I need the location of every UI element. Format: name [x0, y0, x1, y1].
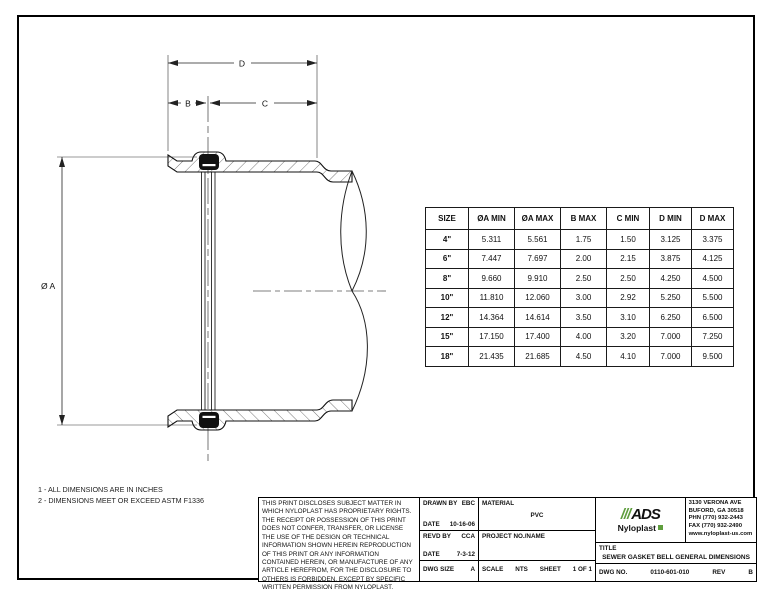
- dwg-size-label: DWG SIZE: [423, 566, 454, 573]
- size-cell: 6": [426, 249, 469, 269]
- company-column: ///ADS Nyloplast 3130 VERONA AVE BUFORD,…: [596, 498, 756, 581]
- dimensions-table: SIZEØA MINØA MAXB MAXC MIND MIND MAX4"5.…: [425, 207, 734, 367]
- project-label: PROJECT NO./NAME: [482, 533, 545, 540]
- company-address: 3130 VERONA AVE BUFORD, GA 30518 PHN (77…: [686, 498, 756, 542]
- value-cell: 3.00: [561, 288, 607, 308]
- address-line: 3130 VERONA AVE: [689, 500, 753, 508]
- ads-nyloplast-logo: ///ADS Nyloplast: [596, 498, 686, 542]
- sheet-label: SHEET: [540, 566, 561, 573]
- value-cell: 2.15: [607, 249, 650, 269]
- proprietary-disclaimer: THIS PRINT DISCLOSES SUBJECT MATTER IN W…: [259, 498, 420, 581]
- nyloplast-wordmark: Nyloplast: [618, 523, 663, 533]
- address-line: BUFORD, GA 30518: [689, 508, 753, 516]
- size-cell: 10": [426, 288, 469, 308]
- table-header-cell: ØA MAX: [515, 208, 561, 230]
- drawing-sheet: D B C Ø A SIZEØA MINØA MAXB MAXC MIND MI…: [0, 0, 776, 600]
- date-label: DATE: [423, 551, 440, 558]
- dwg-size-cell: DWG SIZE A: [420, 561, 478, 578]
- nyloplast-text: Nyloplast: [618, 523, 656, 533]
- address-line: FAX (770) 932-2490: [689, 523, 753, 531]
- company-cell: ///ADS Nyloplast 3130 VERONA AVE BUFORD,…: [596, 498, 756, 543]
- general-notes: 1 - ALL DIMENSIONS ARE IN INCHES 2 - DIM…: [38, 484, 204, 506]
- drawn-by-cell: DRAWN BY EBC DATE 10-16-06: [420, 498, 478, 531]
- value-cell: 6.500: [692, 308, 734, 328]
- value-cell: 5.311: [469, 230, 515, 250]
- value-cell: 3.375: [692, 230, 734, 250]
- value-cell: 7.447: [469, 249, 515, 269]
- dwg-no-value: 0110-601-010: [650, 569, 689, 576]
- material-cell: MATERIAL PVC: [479, 498, 595, 531]
- value-cell: 4.10: [607, 347, 650, 367]
- size-cell: 18": [426, 347, 469, 367]
- value-cell: 4.50: [561, 347, 607, 367]
- dim-label-diameter-a: Ø A: [41, 281, 56, 291]
- dwg-no-cell: DWG NO. 0110-601-010 REV B: [596, 564, 756, 581]
- scale-value: NTS: [515, 566, 528, 573]
- technical-drawing: D B C Ø A: [0, 0, 420, 490]
- size-cell: 8": [426, 269, 469, 289]
- table-row: 18"21.43521.6854.504.107.0009.500: [426, 347, 734, 367]
- project-cell: PROJECT NO./NAME: [479, 531, 595, 561]
- value-cell: 4.250: [650, 269, 692, 289]
- value-cell: 11.810: [469, 288, 515, 308]
- table-header-cell: ØA MIN: [469, 208, 515, 230]
- dimension-diameter-a: Ø A: [41, 157, 197, 425]
- value-cell: 5.561: [515, 230, 561, 250]
- value-cell: 1.50: [607, 230, 650, 250]
- value-cell: 14.364: [469, 308, 515, 328]
- drawn-by-value: EBC: [462, 500, 475, 507]
- title-label: TITLE: [599, 545, 617, 552]
- value-cell: 7.000: [650, 327, 692, 347]
- revd-by-value: CCA: [461, 533, 475, 540]
- drawing-title: SEWER GASKET BELL GENERAL DIMENSIONS: [596, 554, 756, 561]
- value-cell: 2.92: [607, 288, 650, 308]
- dwg-no-label: DWG NO.: [599, 569, 627, 576]
- size-cell: 12": [426, 308, 469, 328]
- value-cell: 5.250: [650, 288, 692, 308]
- dwg-size-value: A: [470, 566, 475, 573]
- value-cell: 17.150: [469, 327, 515, 347]
- gasket-section: [199, 154, 219, 170]
- date-value: 10-16-06: [450, 521, 475, 528]
- bell-wall-bottom: [168, 400, 352, 430]
- value-cell: 3.875: [650, 249, 692, 269]
- value-cell: 6.250: [650, 308, 692, 328]
- value-cell: 12.060: [515, 288, 561, 308]
- value-cell: 7.697: [515, 249, 561, 269]
- value-cell: 9.910: [515, 269, 561, 289]
- scale-label: SCALE: [482, 566, 503, 573]
- sheet-value: 1 OF 1: [573, 566, 592, 573]
- revd-by-label: REVD BY: [423, 533, 451, 540]
- value-cell: 2.00: [561, 249, 607, 269]
- value-cell: 7.250: [692, 327, 734, 347]
- table-row: 4"5.3115.5611.751.503.1253.375: [426, 230, 734, 250]
- scale-sheet-cell: SCALE NTS SHEET 1 OF 1: [479, 561, 595, 578]
- table-row: 15"17.15017.4004.003.207.0007.250: [426, 327, 734, 347]
- value-cell: 7.000: [650, 347, 692, 367]
- table-row: 10"11.81012.0603.002.925.2505.500: [426, 288, 734, 308]
- value-cell: 2.50: [607, 269, 650, 289]
- table-header-cell: D MAX: [692, 208, 734, 230]
- table-header-cell: C MIN: [607, 208, 650, 230]
- address-line: www.nyloplast-us.com: [689, 531, 753, 539]
- size-cell: 4": [426, 230, 469, 250]
- title-cell: TITLE SEWER GASKET BELL GENERAL DIMENSIO…: [596, 543, 756, 565]
- value-cell: 4.00: [561, 327, 607, 347]
- table-row: 12"14.36414.6143.503.106.2506.500: [426, 308, 734, 328]
- drawn-by-label: DRAWN BY: [423, 500, 457, 507]
- address-line: PHN (770) 932-2443: [689, 515, 753, 523]
- dimension-b-c: B C: [168, 99, 317, 109]
- material-value: PVC: [479, 512, 595, 519]
- logo-text: ADS: [631, 506, 660, 523]
- material-label: MATERIAL: [482, 500, 514, 507]
- date-value: 7-3-12: [457, 551, 475, 558]
- dim-label-b: B: [185, 99, 191, 109]
- logo-slashes-icon: ///: [621, 506, 631, 523]
- value-cell: 1.75: [561, 230, 607, 250]
- bell-wall-section: [168, 152, 352, 182]
- table-header-cell: D MIN: [650, 208, 692, 230]
- size-cell: 15": [426, 327, 469, 347]
- ads-logo: ///ADS: [621, 507, 660, 522]
- value-cell: 14.614: [515, 308, 561, 328]
- revd-by-cell: REVD BY CCA DATE 7-3-12: [420, 531, 478, 561]
- value-cell: 3.20: [607, 327, 650, 347]
- table-row: 6"7.4477.6972.002.153.8754.125: [426, 249, 734, 269]
- value-cell: 3.125: [650, 230, 692, 250]
- value-cell: 5.500: [692, 288, 734, 308]
- value-cell: 21.685: [515, 347, 561, 367]
- value-cell: 2.50: [561, 269, 607, 289]
- value-cell: 4.500: [692, 269, 734, 289]
- note-line: 2 - DIMENSIONS MEET OR EXCEED ASTM F1336: [38, 495, 204, 506]
- value-cell: 17.400: [515, 327, 561, 347]
- rev-label: REV: [712, 569, 725, 576]
- value-cell: 9.500: [692, 347, 734, 367]
- table-row: 8"9.6609.9102.502.504.2504.500: [426, 269, 734, 289]
- table-header-cell: SIZE: [426, 208, 469, 230]
- dim-label-c: C: [262, 99, 268, 109]
- bell-wall-top: [168, 152, 352, 182]
- gasket-slot: [203, 164, 216, 166]
- table-header-cell: B MAX: [561, 208, 607, 230]
- value-cell: 3.50: [561, 308, 607, 328]
- dim-label-d: D: [239, 59, 245, 69]
- logo-square-icon: [658, 525, 663, 530]
- value-cell: 21.435: [469, 347, 515, 367]
- note-line: 1 - ALL DIMENSIONS ARE IN INCHES: [38, 484, 204, 495]
- material-column: MATERIAL PVC PROJECT NO./NAME SCALE NTS …: [479, 498, 596, 581]
- value-cell: 4.125: [692, 249, 734, 269]
- title-block: THIS PRINT DISCLOSES SUBJECT MATTER IN W…: [258, 497, 757, 582]
- value-cell: 9.660: [469, 269, 515, 289]
- rev-value: B: [748, 569, 753, 576]
- revision-column: DRAWN BY EBC DATE 10-16-06 REVD BY CCA D…: [420, 498, 479, 581]
- value-cell: 3.10: [607, 308, 650, 328]
- date-label: DATE: [423, 521, 440, 528]
